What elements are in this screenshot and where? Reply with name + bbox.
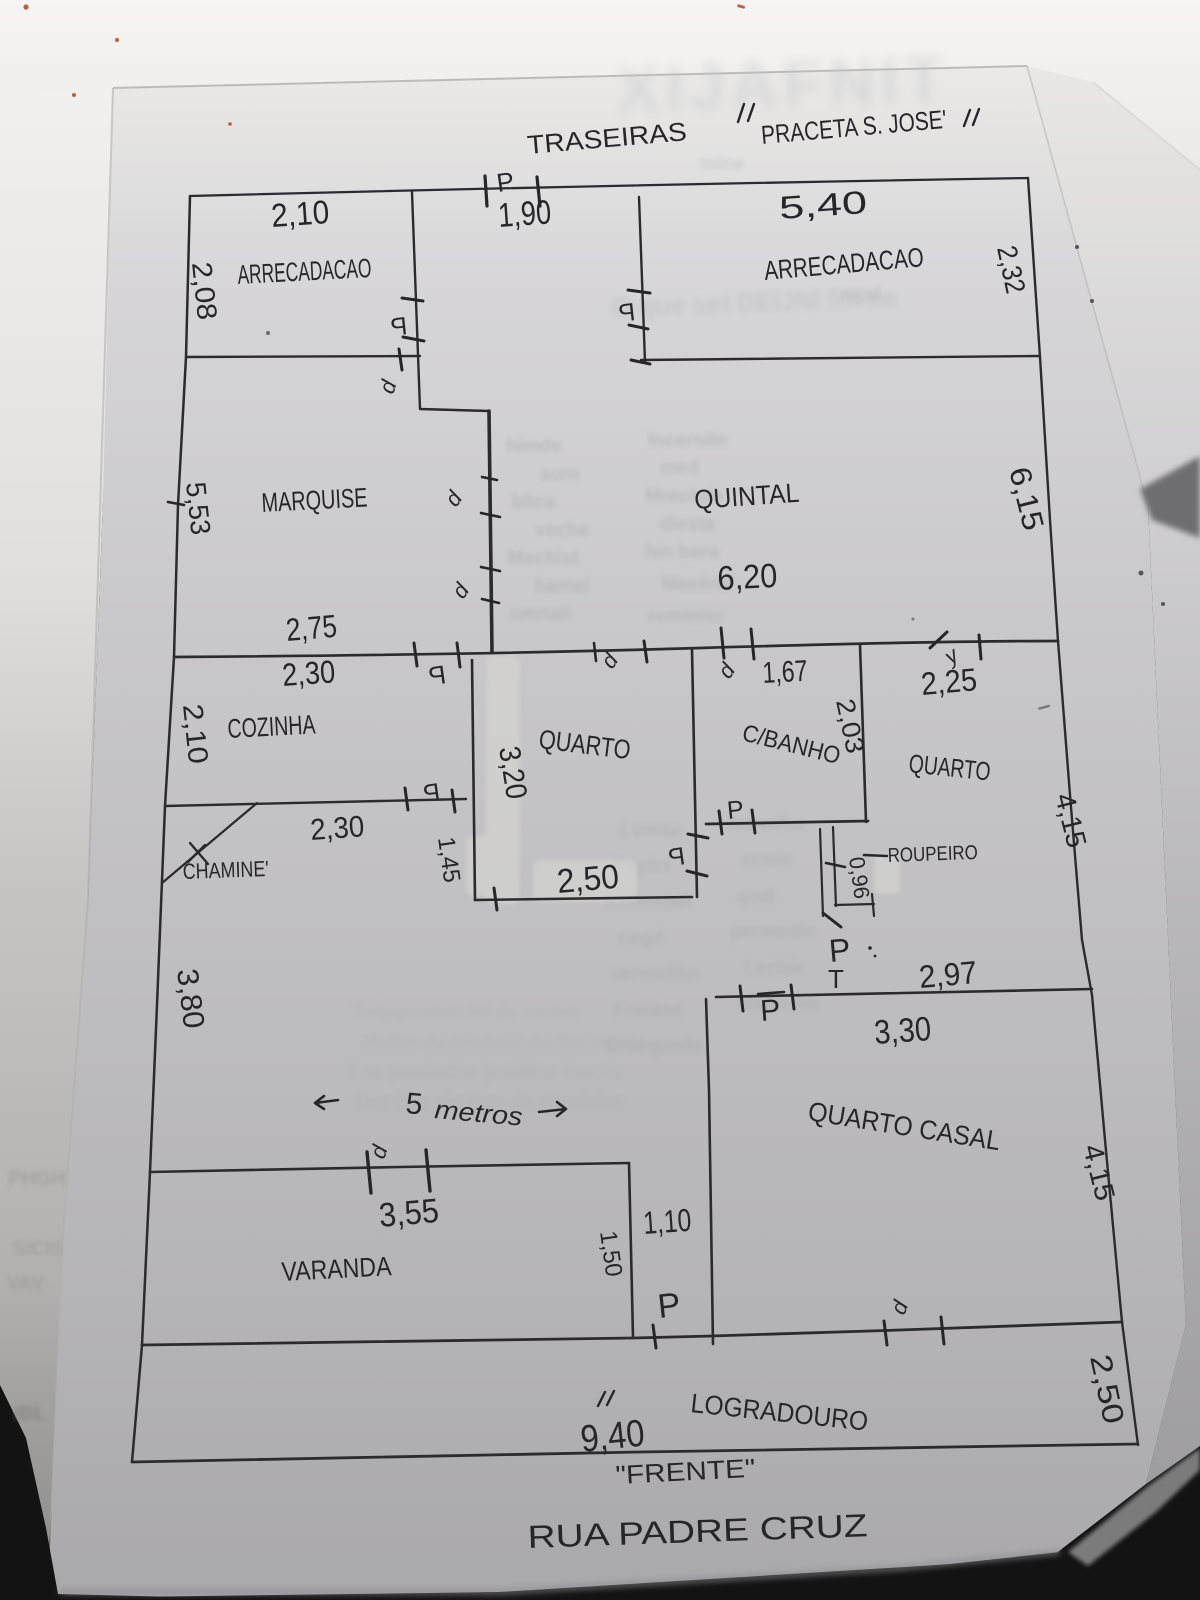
- svg-text:CHAMINE': CHAMINE': [182, 856, 269, 884]
- svg-text:P: P: [759, 994, 781, 1028]
- svg-text:hamel: hamel: [535, 576, 590, 597]
- svg-text:2,30: 2,30: [281, 653, 336, 693]
- svg-text:qual: qual: [736, 886, 775, 907]
- svg-text:2,75: 2,75: [284, 608, 338, 648]
- svg-text:Incernite: Incernite: [648, 430, 727, 451]
- svg-text:reminter: reminter: [648, 606, 725, 627]
- svg-text:2,10: 2,10: [177, 702, 214, 765]
- svg-text:2,50: 2,50: [555, 858, 620, 901]
- svg-text:VAV: VAV: [6, 1273, 45, 1295]
- svg-text:IBL: IBL: [14, 1403, 46, 1425]
- svg-text:Lne pmeindne jmnldns fnecrle: Lne pmeindne jmnldns fnecrle: [350, 1062, 625, 1083]
- svg-text:1,10: 1,10: [642, 1202, 692, 1241]
- svg-text:Frentse: Frentse: [614, 1000, 683, 1021]
- svg-text:negd: negd: [618, 928, 663, 949]
- svg-text:SICIS: SICIS: [12, 1238, 64, 1260]
- svg-text:1,90: 1,90: [497, 193, 553, 235]
- svg-text:himde: himde: [506, 436, 562, 457]
- svg-text:mlne: mlne: [700, 154, 744, 175]
- svg-text:9,40: 9,40: [579, 1412, 647, 1460]
- svg-text:3,30: 3,30: [873, 1010, 933, 1052]
- svg-text:MARQUISE: MARQUISE: [261, 482, 368, 518]
- svg-text:5,40: 5,40: [778, 184, 868, 226]
- svg-text:2,30: 2,30: [309, 810, 365, 847]
- svg-text:2,97: 2,97: [917, 954, 978, 995]
- svg-text:VARANDA: VARANDA: [281, 1251, 392, 1287]
- svg-text:5,53: 5,53: [180, 480, 216, 536]
- svg-text:P: P: [726, 795, 746, 825]
- svg-text:6,20: 6,20: [716, 557, 778, 598]
- svg-text:P: P: [656, 1286, 683, 1326]
- svg-text:Meihn du michelu du fhn mpets: Meihn du michelu du fhn mpets: [362, 1032, 647, 1053]
- svg-text:aum: aum: [540, 464, 579, 485]
- svg-text:Lumse: Lumse: [620, 820, 681, 841]
- svg-text:2,25: 2,25: [919, 661, 978, 702]
- svg-text:COZINHA: COZINHA: [227, 709, 316, 744]
- svg-text:Lechie: Lechie: [744, 958, 804, 979]
- svg-text:vermeilhn: vermeilhn: [610, 964, 700, 985]
- svg-text:2,08: 2,08: [186, 260, 223, 321]
- svg-text:diesta: diesta: [660, 514, 715, 535]
- svg-text:P: P: [389, 312, 409, 342]
- svg-text:Tequpostem lei du rechm: Tequpostem lei du rechm: [352, 1002, 581, 1023]
- svg-text:1,67: 1,67: [762, 655, 809, 690]
- svg-text:permedin: permedin: [730, 922, 816, 943]
- svg-text:3,55: 3,55: [377, 1192, 440, 1235]
- svg-text:umnali: umnali: [510, 604, 571, 625]
- svg-text:mgd: mgd: [840, 284, 880, 305]
- svg-text:ROUPEIRO: ROUPEIRO: [887, 842, 978, 867]
- svg-text:T: T: [828, 964, 844, 994]
- svg-text:5: 5: [404, 1087, 424, 1121]
- svg-text:med: med: [660, 458, 699, 479]
- svg-text:Mechist: Mechist: [508, 548, 579, 569]
- svg-text:veche: veche: [535, 520, 589, 541]
- svg-text:blica: blica: [512, 492, 556, 513]
- svg-text:2,10: 2,10: [270, 193, 330, 234]
- svg-text:PHGH: PHGH: [8, 1168, 66, 1190]
- svg-text:ermle: ermle: [742, 850, 793, 871]
- svg-text:hin bera: hin bera: [645, 542, 719, 563]
- svg-text:P: P: [617, 298, 637, 328]
